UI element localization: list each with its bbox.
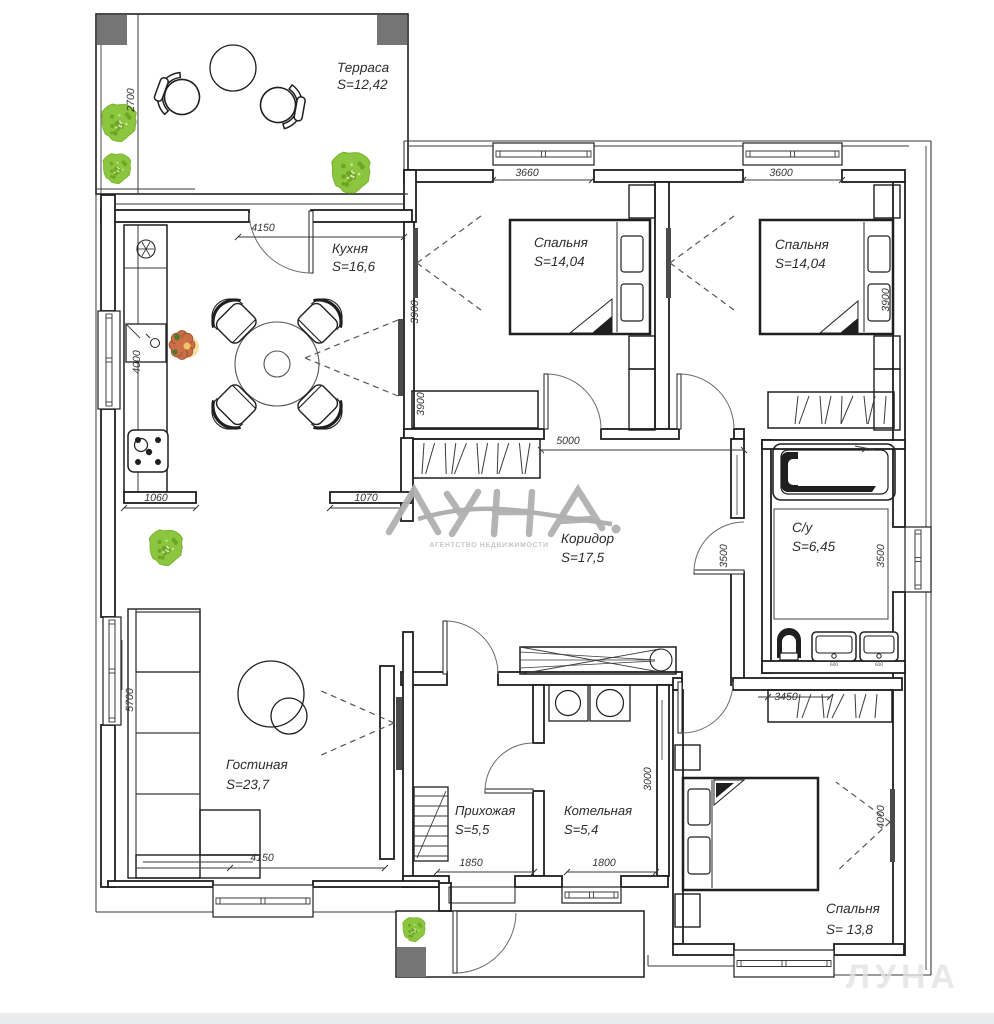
svg-text:АГЕНТСТВО НЕДВИЖИМОСТИ: АГЕНТСТВО НЕДВИЖИМОСТИ [429,542,548,549]
svg-text:Спальня: Спальня [826,901,880,916]
svg-text:Прихожая: Прихожая [455,803,515,818]
svg-text:5700: 5700 [124,688,136,712]
svg-text:Спальня: Спальня [534,235,588,250]
svg-text:Гостиная: Гостиная [226,757,288,772]
svg-text:3900: 3900 [409,300,421,324]
svg-text:1060: 1060 [144,492,168,504]
svg-text:3500: 3500 [875,544,887,568]
svg-text:600: 600 [875,662,884,668]
svg-text:Кухня: Кухня [332,241,368,256]
svg-text:3000: 3000 [642,767,654,791]
svg-text:600: 600 [830,662,839,668]
svg-text:S=12,42: S=12,42 [337,77,388,92]
svg-text:4000: 4000 [131,350,143,374]
svg-text:S=5,4: S=5,4 [564,822,598,837]
svg-text:3660: 3660 [515,167,539,179]
svg-text:S= 13,8: S= 13,8 [826,922,873,937]
svg-text:Котельная: Котельная [564,803,632,818]
svg-text:4150: 4150 [251,222,275,234]
svg-text:1850: 1850 [459,857,483,869]
svg-text:S=14,04: S=14,04 [775,256,826,271]
svg-text:S=16,6: S=16,6 [332,259,376,274]
svg-text:2700: 2700 [125,88,137,113]
svg-text:S=14,04: S=14,04 [534,254,585,269]
svg-text:ЛУНА: ЛУНА [846,958,960,996]
svg-text:1800: 1800 [592,857,616,869]
svg-text:Коридор: Коридор [561,531,614,546]
svg-text:S=6,45: S=6,45 [792,539,836,554]
svg-text:Спальня: Спальня [775,237,829,252]
svg-text:4150: 4150 [250,852,274,864]
svg-text:Терраса: Терраса [337,60,390,75]
svg-text:3900: 3900 [880,288,892,312]
svg-text:S=17,5: S=17,5 [561,550,605,565]
svg-text:3600: 3600 [769,167,793,179]
svg-text:S=23,7: S=23,7 [226,777,270,792]
svg-text:S=5,5: S=5,5 [455,822,490,837]
svg-text:4000: 4000 [875,805,887,829]
svg-text:3900: 3900 [415,392,427,416]
svg-text:5000: 5000 [556,435,580,447]
svg-text:С/у: С/у [792,520,814,535]
svg-text:3500: 3500 [718,544,730,568]
svg-text:1070: 1070 [354,492,378,504]
